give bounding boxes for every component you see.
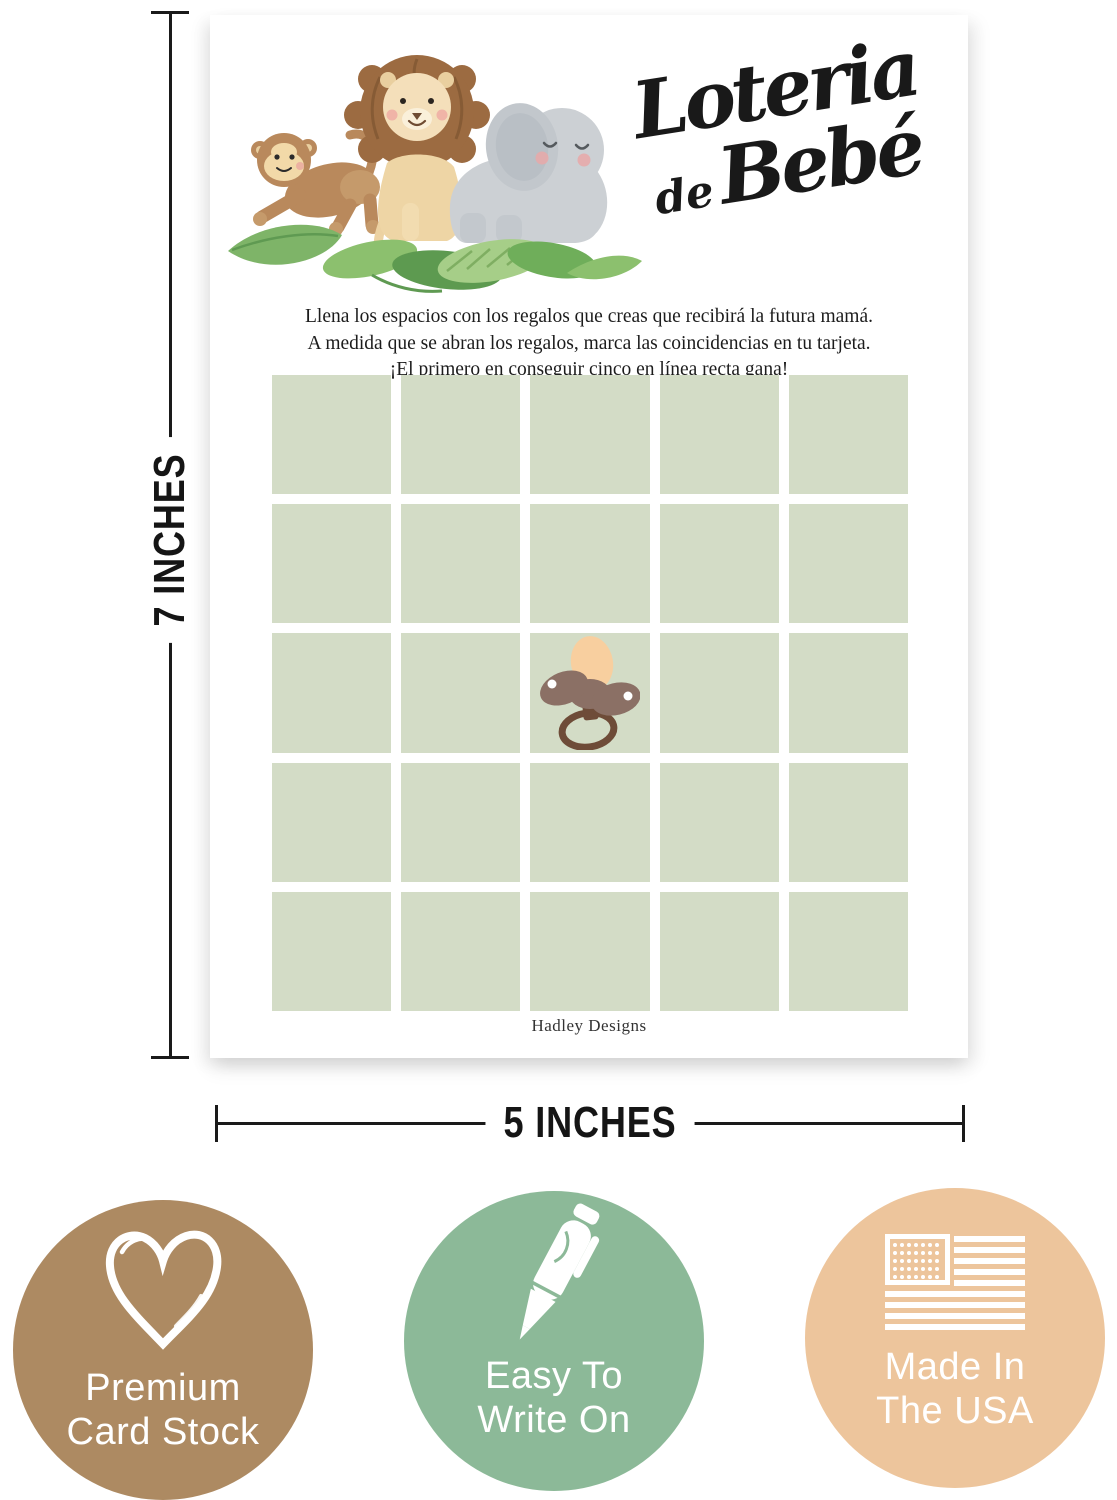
brand-name: Hadley Designs [210, 1016, 968, 1036]
instructions-line-1: Llena los espacios con los regalos que c… [210, 304, 968, 331]
bingo-cell [401, 504, 520, 623]
bingo-cell [789, 763, 908, 882]
bingo-cell [530, 763, 649, 882]
bingo-cell [660, 375, 779, 494]
bingo-cell [530, 375, 649, 494]
bingo-cell [789, 504, 908, 623]
height-dimension-label: 7 INCHES [145, 437, 195, 643]
bingo-cell [272, 763, 391, 882]
width-dimension-label: 5 INCHES [485, 1098, 694, 1148]
height-dimension-cap-bottom [151, 1056, 189, 1059]
bingo-grid [272, 375, 908, 1011]
us-flag-icon [885, 1234, 1025, 1332]
badge-made-in-the-usa: Made In The USA [805, 1188, 1105, 1488]
bingo-cell [401, 763, 520, 882]
bingo-cell [272, 892, 391, 1011]
instructions: Llena los espacios con los regalos que c… [210, 304, 968, 384]
bingo-cell [401, 633, 520, 752]
width-dimension-cap-left [215, 1105, 218, 1142]
bingo-cell [272, 375, 391, 494]
badge-label: Premium Card Stock [67, 1366, 260, 1454]
product-image: 7 INCHES 5 INCHES [0, 0, 1117, 1500]
bingo-cell [401, 892, 520, 1011]
instructions-line-2: A medida que se abran los regalos, marca… [210, 331, 968, 358]
safari-animals-illustration [222, 55, 652, 300]
badge-premium-card-stock: Premium Card Stock [13, 1200, 313, 1500]
bingo-cell-free-space [530, 633, 649, 752]
card-title: Loteria deBebé [606, 28, 956, 230]
bingo-cell [660, 504, 779, 623]
bingo-cell [660, 892, 779, 1011]
bingo-cell [530, 504, 649, 623]
height-dimension-cap-top [151, 11, 189, 14]
bingo-cell [789, 892, 908, 1011]
bingo-cell [660, 763, 779, 882]
badge-easy-to-write-on: Easy To Write On [404, 1191, 704, 1491]
width-dimension-cap-right [962, 1105, 965, 1142]
bingo-cell [789, 633, 908, 752]
badge-label: Made In The USA [876, 1345, 1034, 1433]
bingo-cell [789, 375, 908, 494]
bingo-cell [272, 504, 391, 623]
bingo-card: Loteria deBebé Llena los espacios con lo… [210, 15, 968, 1058]
heart-icon [88, 1212, 238, 1362]
pen-icon [484, 1197, 624, 1352]
bingo-cell [660, 633, 779, 752]
bingo-cell [530, 892, 649, 1011]
bingo-cell [272, 633, 391, 752]
bingo-cell [401, 375, 520, 494]
card-title-de: de [651, 166, 717, 226]
pacifier-icon [540, 636, 640, 750]
badge-label: Easy To Write On [477, 1354, 630, 1442]
